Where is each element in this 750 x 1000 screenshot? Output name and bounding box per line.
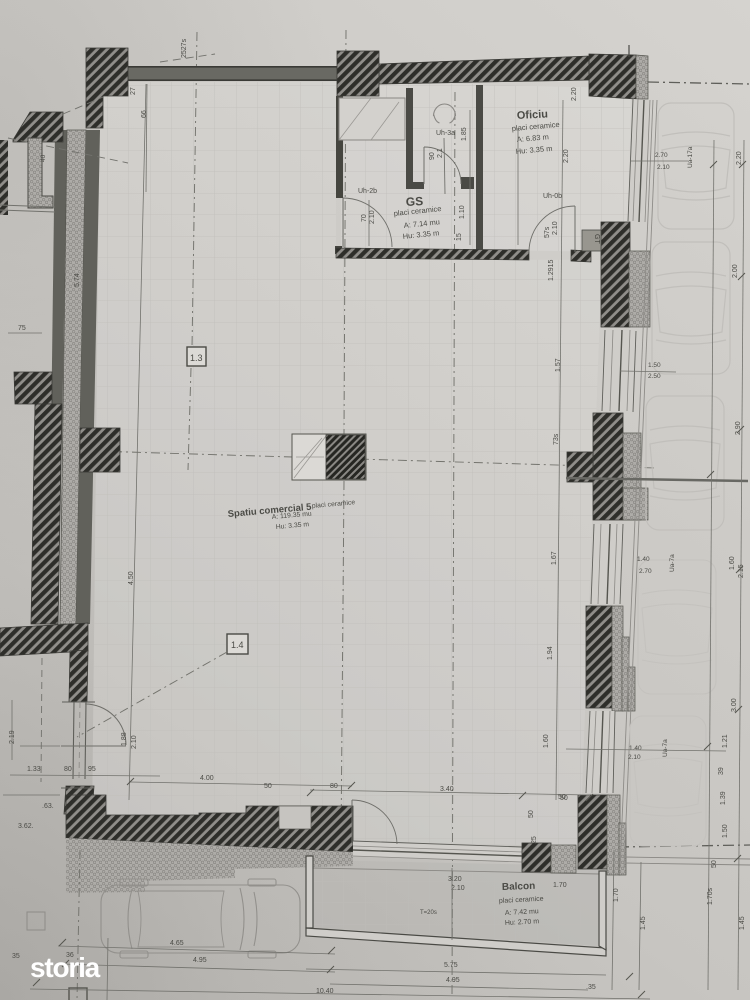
svg-text:Ua-7a: Ua-7a bbox=[662, 739, 669, 757]
svg-text:2.10: 2.10 bbox=[369, 210, 376, 224]
svg-text:4.95: 4.95 bbox=[446, 977, 460, 984]
svg-text:1.60: 1.60 bbox=[729, 556, 736, 570]
svg-text:2.20: 2.20 bbox=[571, 87, 578, 101]
svg-text:Uh-2b: Uh-2b bbox=[358, 188, 377, 195]
svg-text:Balcon: Balcon bbox=[502, 881, 536, 893]
svg-text:1.45: 1.45 bbox=[739, 916, 746, 930]
svg-text:1.3: 1.3 bbox=[190, 353, 203, 363]
svg-text:10.40: 10.40 bbox=[316, 988, 334, 995]
svg-text:Uh-0b: Uh-0b bbox=[543, 193, 562, 200]
svg-text:2.70: 2.70 bbox=[639, 568, 652, 575]
svg-text:2.20: 2.20 bbox=[563, 149, 570, 163]
svg-text:1.50: 1.50 bbox=[648, 362, 661, 369]
svg-text:50: 50 bbox=[558, 794, 566, 801]
svg-text:2.50: 2.50 bbox=[648, 373, 661, 380]
svg-text:1.33: 1.33 bbox=[27, 766, 41, 773]
svg-text:.63.: .63. bbox=[42, 803, 54, 810]
svg-text:80: 80 bbox=[64, 766, 72, 773]
svg-text:1.10: 1.10 bbox=[459, 205, 466, 219]
svg-text:1.70: 1.70 bbox=[613, 888, 620, 902]
svg-text:GT: GT bbox=[593, 234, 600, 244]
svg-text:2.10: 2.10 bbox=[552, 221, 559, 235]
svg-text:5.74: 5.74 bbox=[74, 273, 81, 287]
svg-text:4.50: 4.50 bbox=[128, 571, 135, 585]
svg-text:1.4: 1.4 bbox=[231, 640, 244, 650]
svg-text:25: 25 bbox=[531, 836, 538, 844]
svg-text:4.00: 4.00 bbox=[200, 775, 214, 782]
svg-text:1.40: 1.40 bbox=[637, 556, 650, 563]
svg-text:1.39: 1.39 bbox=[720, 791, 727, 805]
svg-text:3.40: 3.40 bbox=[440, 786, 454, 793]
svg-text:1.94: 1.94 bbox=[547, 646, 554, 660]
svg-text:Ua-7a: Ua-7a bbox=[669, 554, 676, 572]
svg-text:3.20: 3.20 bbox=[448, 876, 462, 883]
svg-text:2.10: 2.10 bbox=[451, 885, 465, 892]
svg-text:40: 40 bbox=[40, 154, 47, 162]
svg-text:Uh-3a: Uh-3a bbox=[436, 130, 455, 137]
svg-text:1.70s: 1.70s bbox=[707, 887, 714, 905]
svg-text:2.00: 2.00 bbox=[732, 264, 739, 278]
svg-text:27: 27 bbox=[130, 87, 137, 95]
svg-text:75: 75 bbox=[18, 325, 26, 332]
svg-text:4.95: 4.95 bbox=[193, 957, 207, 964]
svg-text:1.57: 1.57 bbox=[555, 358, 562, 372]
svg-text:1.88: 1.88 bbox=[121, 732, 128, 746]
svg-text:2527s: 2527s bbox=[181, 38, 188, 58]
svg-text:1.85: 1.85 bbox=[461, 127, 468, 141]
svg-text:1.2915: 1.2915 bbox=[548, 259, 555, 281]
svg-text:1.45: 1.45 bbox=[640, 916, 647, 930]
svg-text:Ua-17a: Ua-17a bbox=[687, 146, 694, 168]
svg-text:50: 50 bbox=[264, 783, 272, 790]
svg-text:4.65: 4.65 bbox=[170, 940, 184, 947]
svg-text:.35: .35 bbox=[586, 984, 596, 991]
svg-text:1.60: 1.60 bbox=[543, 734, 550, 748]
svg-text:1.67: 1.67 bbox=[551, 551, 558, 565]
svg-text:95: 95 bbox=[88, 766, 96, 773]
svg-text:2.19: 2.19 bbox=[9, 730, 16, 744]
svg-text:50: 50 bbox=[711, 860, 718, 868]
svg-text:2.10: 2.10 bbox=[657, 164, 670, 171]
svg-text:5.75: 5.75 bbox=[444, 962, 458, 969]
svg-text:2.90: 2.90 bbox=[735, 421, 742, 435]
svg-text:storia: storia bbox=[30, 952, 101, 983]
svg-text:2.15: 2.15 bbox=[738, 564, 745, 578]
svg-text:1.40: 1.40 bbox=[629, 745, 642, 752]
svg-text:2.70: 2.70 bbox=[655, 152, 668, 159]
svg-text:73s: 73s bbox=[553, 433, 560, 445]
svg-text:70: 70 bbox=[361, 214, 368, 222]
svg-text:T=20s: T=20s bbox=[420, 910, 437, 916]
svg-text:35: 35 bbox=[12, 953, 20, 960]
svg-text:15: 15 bbox=[456, 233, 463, 241]
svg-text:39: 39 bbox=[718, 767, 725, 775]
svg-text:2.10: 2.10 bbox=[131, 735, 138, 749]
svg-text:3.62.: 3.62. bbox=[18, 823, 34, 830]
svg-text:66: 66 bbox=[141, 110, 148, 118]
svg-text:1.21: 1.21 bbox=[722, 734, 729, 748]
svg-text:80: 80 bbox=[330, 783, 338, 790]
svg-text:3.00: 3.00 bbox=[731, 698, 738, 712]
svg-text:50: 50 bbox=[528, 810, 535, 818]
svg-text:1.50: 1.50 bbox=[722, 824, 729, 838]
svg-text:Oficiu: Oficiu bbox=[517, 108, 549, 122]
svg-text:2.20: 2.20 bbox=[736, 151, 743, 165]
svg-text:2.1: 2.1 bbox=[437, 148, 444, 158]
svg-text:1.70: 1.70 bbox=[553, 882, 567, 889]
svg-text:2.10: 2.10 bbox=[628, 754, 641, 761]
svg-text:57s: 57s bbox=[544, 226, 551, 238]
svg-text:90: 90 bbox=[429, 152, 436, 160]
